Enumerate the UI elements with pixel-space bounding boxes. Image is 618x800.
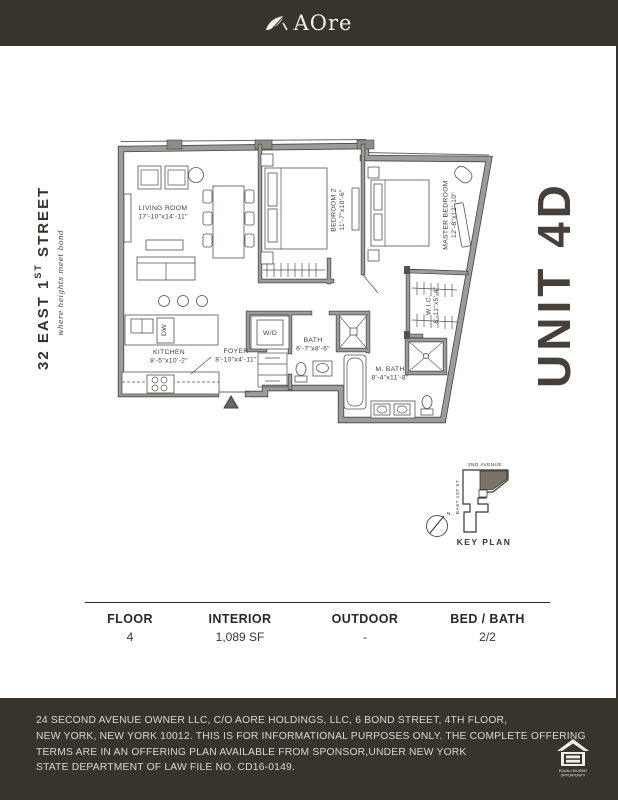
key-plan-title: KEY PLAN xyxy=(457,537,512,547)
eho-text-1: EQUAL HOUSING xyxy=(559,769,587,773)
entry-marker xyxy=(224,396,238,408)
core-block xyxy=(479,490,487,497)
stat-value: 4 xyxy=(85,630,175,644)
kitchen-label: KITCHEN xyxy=(153,349,185,356)
stat-value: 2/2 xyxy=(425,630,550,644)
wic-dims: 6'-11"x5'-4" xyxy=(433,286,440,324)
header-bar: AOre xyxy=(0,0,616,46)
stat-value: - xyxy=(305,630,425,644)
stat-floor: FLOOR 4 xyxy=(85,612,175,644)
stat-interior: INTERIOR 1,089 SF xyxy=(175,612,305,644)
stat-outdoor: OUTDOOR - xyxy=(305,612,425,644)
stat-bed-bath: BED / BATH 2/2 xyxy=(425,612,550,644)
north-label: N xyxy=(447,511,450,516)
unit-title: UNIT 4D xyxy=(527,165,589,405)
bath-fixtures xyxy=(295,361,332,382)
master-bath-fixtures xyxy=(344,355,433,418)
legal-line: TERMS ARE IN AN OFFERING PLAN AVAILABLE … xyxy=(36,745,586,761)
street-label-left: EAST 1ST ST xyxy=(455,480,461,514)
master-bedroom-label: MASTER BEDROOM xyxy=(443,180,450,250)
foyer-dims: 8'-10"x4'-11" xyxy=(215,357,257,364)
foyer-label: FOYER xyxy=(224,348,249,355)
master-bedroom-dims: 12'-8"x12'-10" xyxy=(451,192,458,238)
bedroom2-label: BEDROOM 2 xyxy=(331,188,338,232)
street-label-top: 2ND AVENUE xyxy=(468,462,502,468)
legal-line: NEW YORK, NEW YORK 10012. THIS IS FOR IN… xyxy=(36,729,586,745)
master-shower xyxy=(407,340,445,373)
living-room-dims: 17'-10"x14'-11" xyxy=(138,214,188,221)
master-bath-label: M. BATH xyxy=(375,366,404,373)
brand-wordmark: AOre xyxy=(294,11,353,35)
kitchen-dims: 8'-5"x10'-2" xyxy=(150,358,188,365)
address-ordinal: ST xyxy=(33,263,43,279)
footer-bar: 24 SECOND AVENUE OWNER LLC, C/O AORE HOL… xyxy=(0,698,616,800)
unit-highlight xyxy=(480,471,507,490)
legal-disclaimer: 24 SECOND AVENUE OWNER LLC, C/O AORE HOL… xyxy=(36,713,586,776)
leaf-logo-icon xyxy=(264,14,288,33)
wic-label: W.I.C. xyxy=(426,295,433,315)
living-room-label: LIVING ROOM xyxy=(139,205,188,212)
stat-label: INTERIOR xyxy=(175,612,305,626)
floor-plan: LIVING ROOM 17'-10"x14'-11" BEDROOM 2 11… xyxy=(105,130,515,430)
key-plan: 2ND AVENUE EAST 1ST ST N KEY PLAN xyxy=(420,452,540,557)
building-tagline: where heights meet bond xyxy=(56,208,71,358)
bedroom2-dims: 11'-7"x10'-6" xyxy=(339,189,346,231)
unit-stats: FLOOR 4 INTERIOR 1,089 SF OUTDOOR - BED … xyxy=(85,602,550,644)
stat-value: 1,089 SF xyxy=(175,630,305,644)
bath-shower xyxy=(338,314,368,350)
washer-dryer-label: W/D xyxy=(263,330,277,337)
building-address: 32 EAST 1ST STREET xyxy=(33,182,57,374)
stat-label: OUTDOOR xyxy=(305,612,425,626)
master-bath-dims: 8'-4"x11'-8" xyxy=(371,375,409,382)
bath-label: BATH xyxy=(304,337,323,344)
legal-line: 24 SECOND AVENUE OWNER LLC, C/O AORE HOL… xyxy=(36,713,586,729)
living-room-furniture xyxy=(124,166,254,280)
stat-label: FLOOR xyxy=(85,612,175,626)
legal-line: STATE DEPARTMENT OF LAW FILE NO. CD16-01… xyxy=(36,760,586,776)
bath-dims: 6'-7"x8'-6" xyxy=(296,346,330,353)
equal-housing-icon: EQUAL HOUSING OPPORTUNITY xyxy=(556,738,590,780)
dishwasher-label: DW xyxy=(161,324,168,336)
eho-text-2: OPPORTUNITY xyxy=(561,774,586,778)
stat-label: BED / BATH xyxy=(425,612,550,626)
floorplan-sheet: AOre 32 EAST 1ST STREET where heights me… xyxy=(0,0,618,800)
kitchen-fixtures xyxy=(122,296,219,395)
compass: N xyxy=(427,511,451,537)
